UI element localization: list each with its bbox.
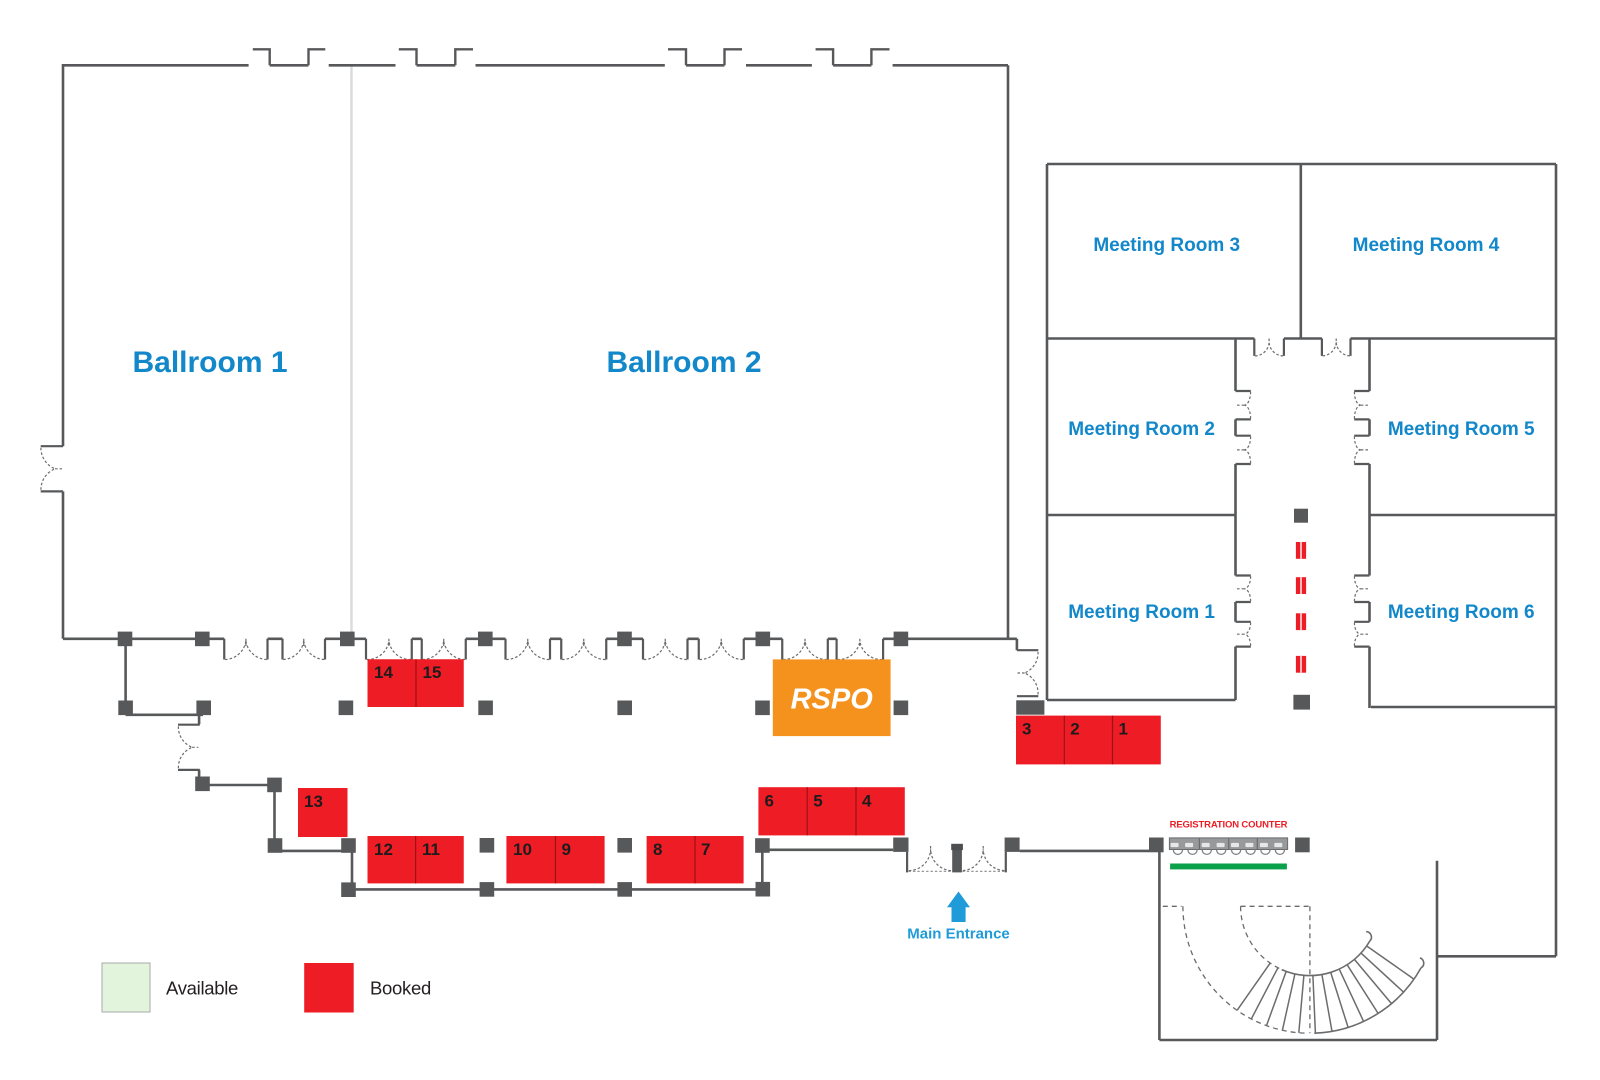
svg-text:Meeting Room 5: Meeting Room 5 <box>1388 419 1535 440</box>
svg-text:Meeting Room 1: Meeting Room 1 <box>1068 602 1215 623</box>
svg-text:11: 11 <box>422 840 440 859</box>
svg-text:15: 15 <box>423 663 442 682</box>
svg-text:Available: Available <box>166 978 238 999</box>
svg-text:Main Entrance: Main Entrance <box>907 926 1010 943</box>
svg-text:13: 13 <box>304 792 323 811</box>
svg-text:8: 8 <box>653 840 662 859</box>
svg-text:Meeting Room 2: Meeting Room 2 <box>1068 419 1215 440</box>
svg-text:6: 6 <box>765 792 774 811</box>
svg-text:REGISTRATION COUNTER: REGISTRATION COUNTER <box>1170 820 1288 831</box>
svg-text:4: 4 <box>862 792 872 811</box>
svg-text:Meeting Room 4: Meeting Room 4 <box>1353 235 1500 256</box>
svg-text:1: 1 <box>1119 720 1128 739</box>
svg-text:Meeting Room 6: Meeting Room 6 <box>1388 602 1535 623</box>
svg-text:7: 7 <box>701 840 710 859</box>
svg-text:Meeting Room 3: Meeting Room 3 <box>1093 235 1240 256</box>
svg-text:9: 9 <box>562 840 571 859</box>
svg-text:2: 2 <box>1070 720 1079 739</box>
svg-text:14: 14 <box>374 663 393 682</box>
svg-text:Ballroom 2: Ballroom 2 <box>606 346 761 379</box>
svg-text:Booked: Booked <box>370 978 431 999</box>
svg-text:5: 5 <box>813 792 822 811</box>
svg-text:10: 10 <box>513 840 532 859</box>
svg-text:12: 12 <box>374 840 393 859</box>
svg-text:3: 3 <box>1022 720 1031 739</box>
svg-text:RSPO: RSPO <box>791 684 874 716</box>
svg-text:Ballroom 1: Ballroom 1 <box>132 346 287 379</box>
